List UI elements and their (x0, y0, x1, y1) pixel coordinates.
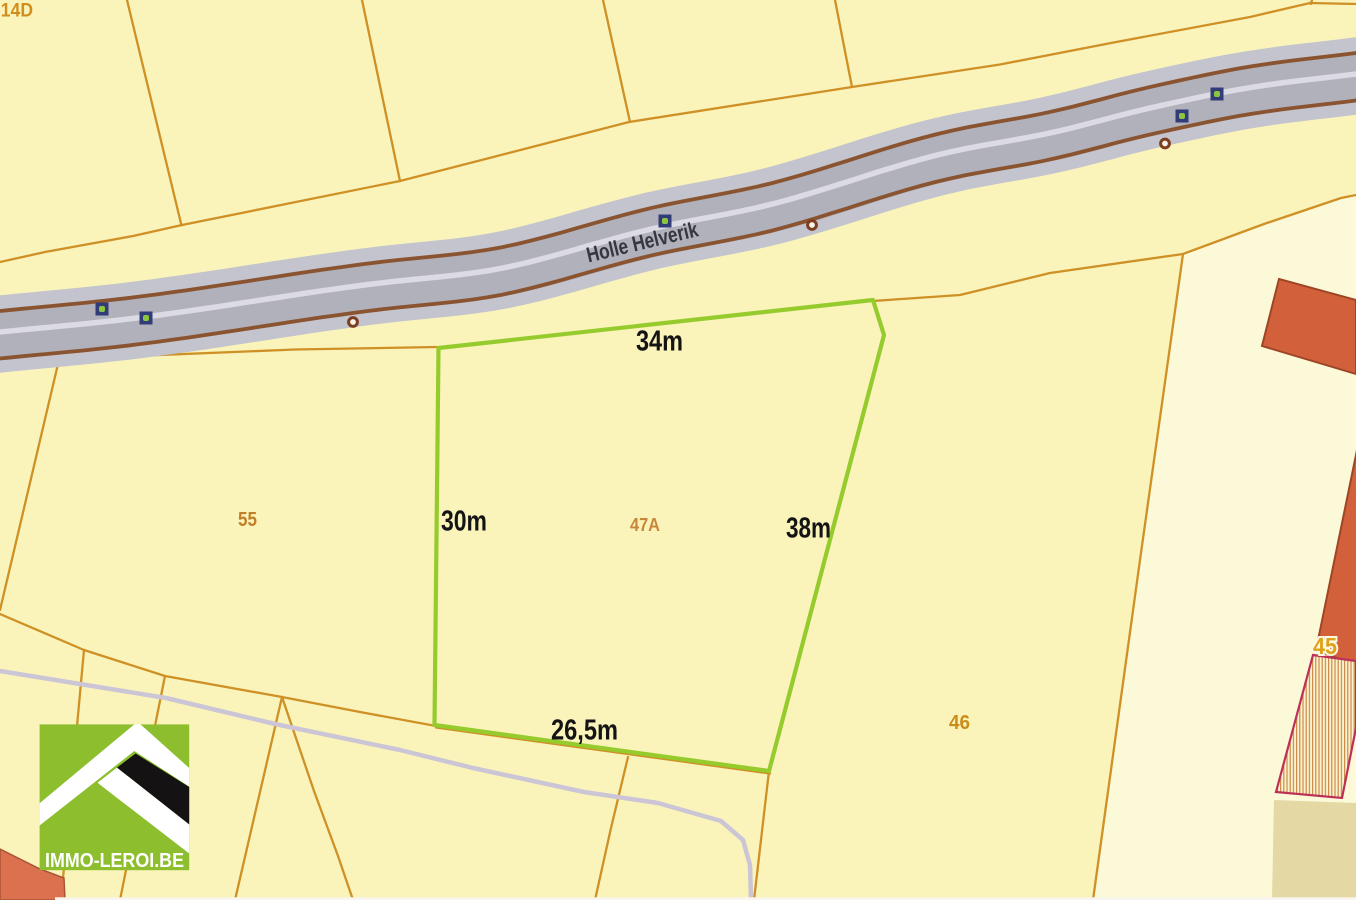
svg-text:34m: 34m (636, 326, 683, 358)
svg-text:47A: 47A (630, 515, 660, 535)
svg-text:26,5m: 26,5m (551, 715, 618, 747)
svg-text:46: 46 (949, 712, 970, 734)
svg-text:IMMO-LEROI.BE: IMMO-LEROI.BE (45, 850, 184, 872)
svg-text:314D: 314D (0, 1, 33, 22)
svg-text:55: 55 (238, 509, 257, 531)
svg-text:30m: 30m (441, 506, 487, 538)
svg-text:45: 45 (1313, 633, 1337, 659)
svg-text:38m: 38m (786, 513, 831, 545)
